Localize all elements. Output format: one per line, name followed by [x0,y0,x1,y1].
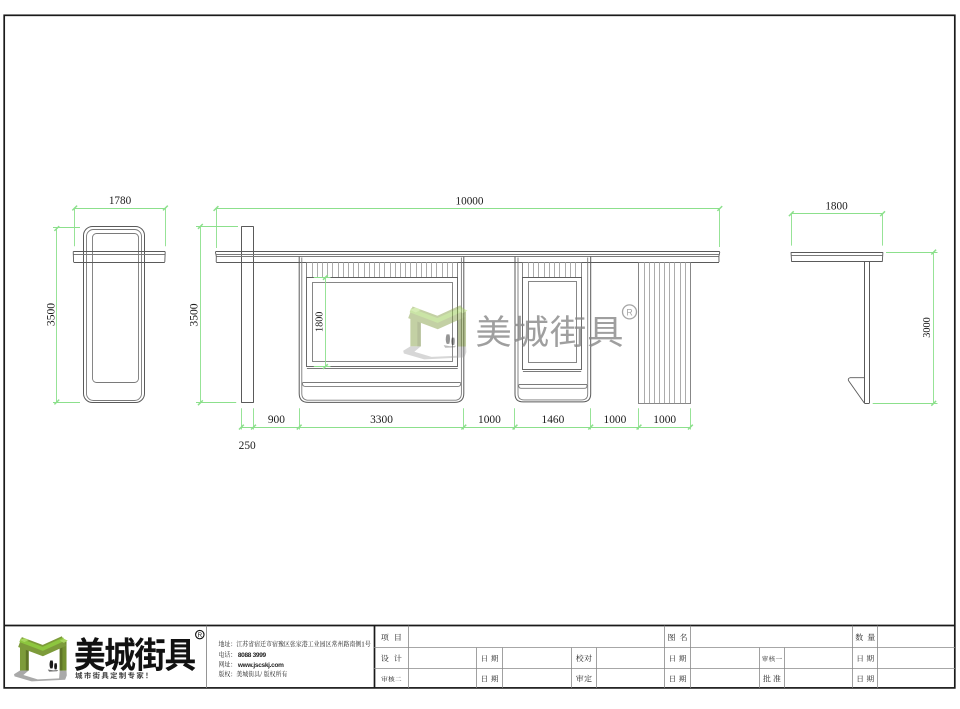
svg-text:3000: 3000 [922,317,933,337]
svg-text:3500: 3500 [45,303,58,326]
svg-text:1460: 1460 [542,414,565,426]
svg-text:R: R [198,632,203,639]
svg-text:/: / [260,671,262,679]
svg-text:1800: 1800 [825,201,848,213]
svg-text:250: 250 [239,440,256,452]
svg-text:1000: 1000 [653,414,676,426]
svg-text:900: 900 [268,414,285,426]
svg-text:1000: 1000 [478,414,501,426]
svg-text:R: R [626,307,632,317]
svg-text:8088 3999: 8088 3999 [238,652,267,659]
svg-text:10000: 10000 [456,195,484,207]
svg-text:www.jscskj.com: www.jscskj.com [237,662,284,669]
svg-text:3500: 3500 [187,303,200,326]
svg-text:3300: 3300 [370,414,393,426]
svg-text:1800: 1800 [315,312,326,332]
svg-text:1000: 1000 [604,414,627,426]
svg-text:1780: 1780 [109,195,132,207]
svg-text:1: 1 [361,640,365,648]
